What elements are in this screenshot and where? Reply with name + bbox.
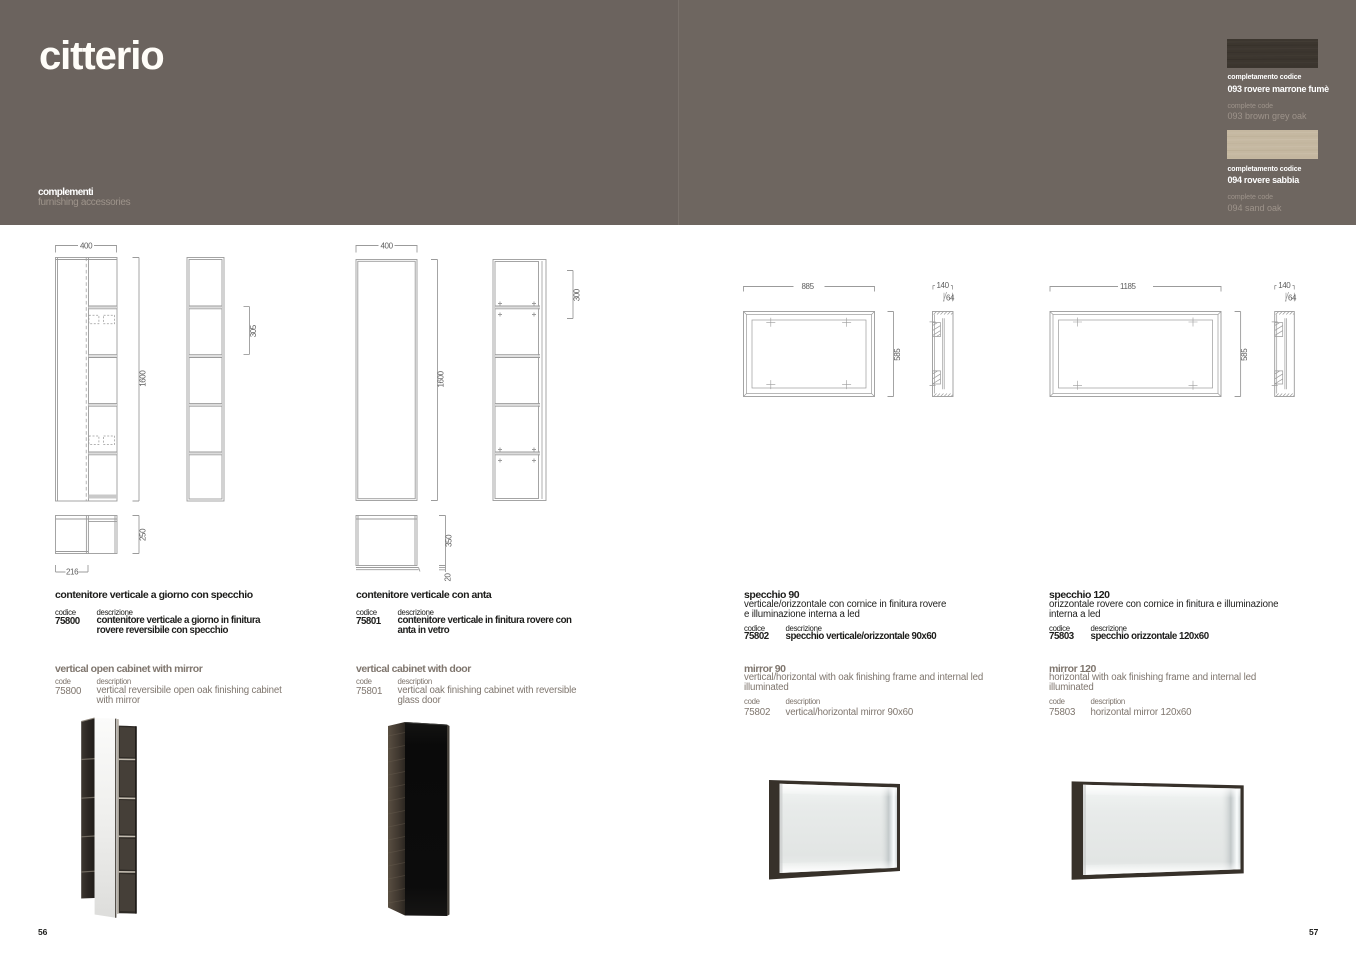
- svg-text:64: 64: [1288, 294, 1297, 303]
- svg-text:1600: 1600: [139, 370, 148, 387]
- svg-text:1185: 1185: [1120, 282, 1137, 291]
- svg-text:305: 305: [249, 324, 258, 337]
- svg-text:250: 250: [139, 528, 148, 541]
- svg-text:1600: 1600: [437, 370, 446, 387]
- svg-text:885: 885: [802, 282, 815, 291]
- svg-text:64: 64: [946, 294, 955, 303]
- svg-text:400: 400: [381, 241, 394, 250]
- svg-text:585: 585: [1240, 348, 1249, 361]
- svg-text:400: 400: [80, 241, 93, 250]
- svg-text:585: 585: [893, 348, 902, 361]
- svg-text:300: 300: [572, 288, 581, 301]
- svg-text:20: 20: [444, 572, 453, 581]
- svg-text:140: 140: [937, 281, 950, 290]
- svg-text:350: 350: [445, 534, 454, 547]
- svg-text:216: 216: [66, 568, 79, 577]
- svg-text:140: 140: [1278, 281, 1291, 290]
